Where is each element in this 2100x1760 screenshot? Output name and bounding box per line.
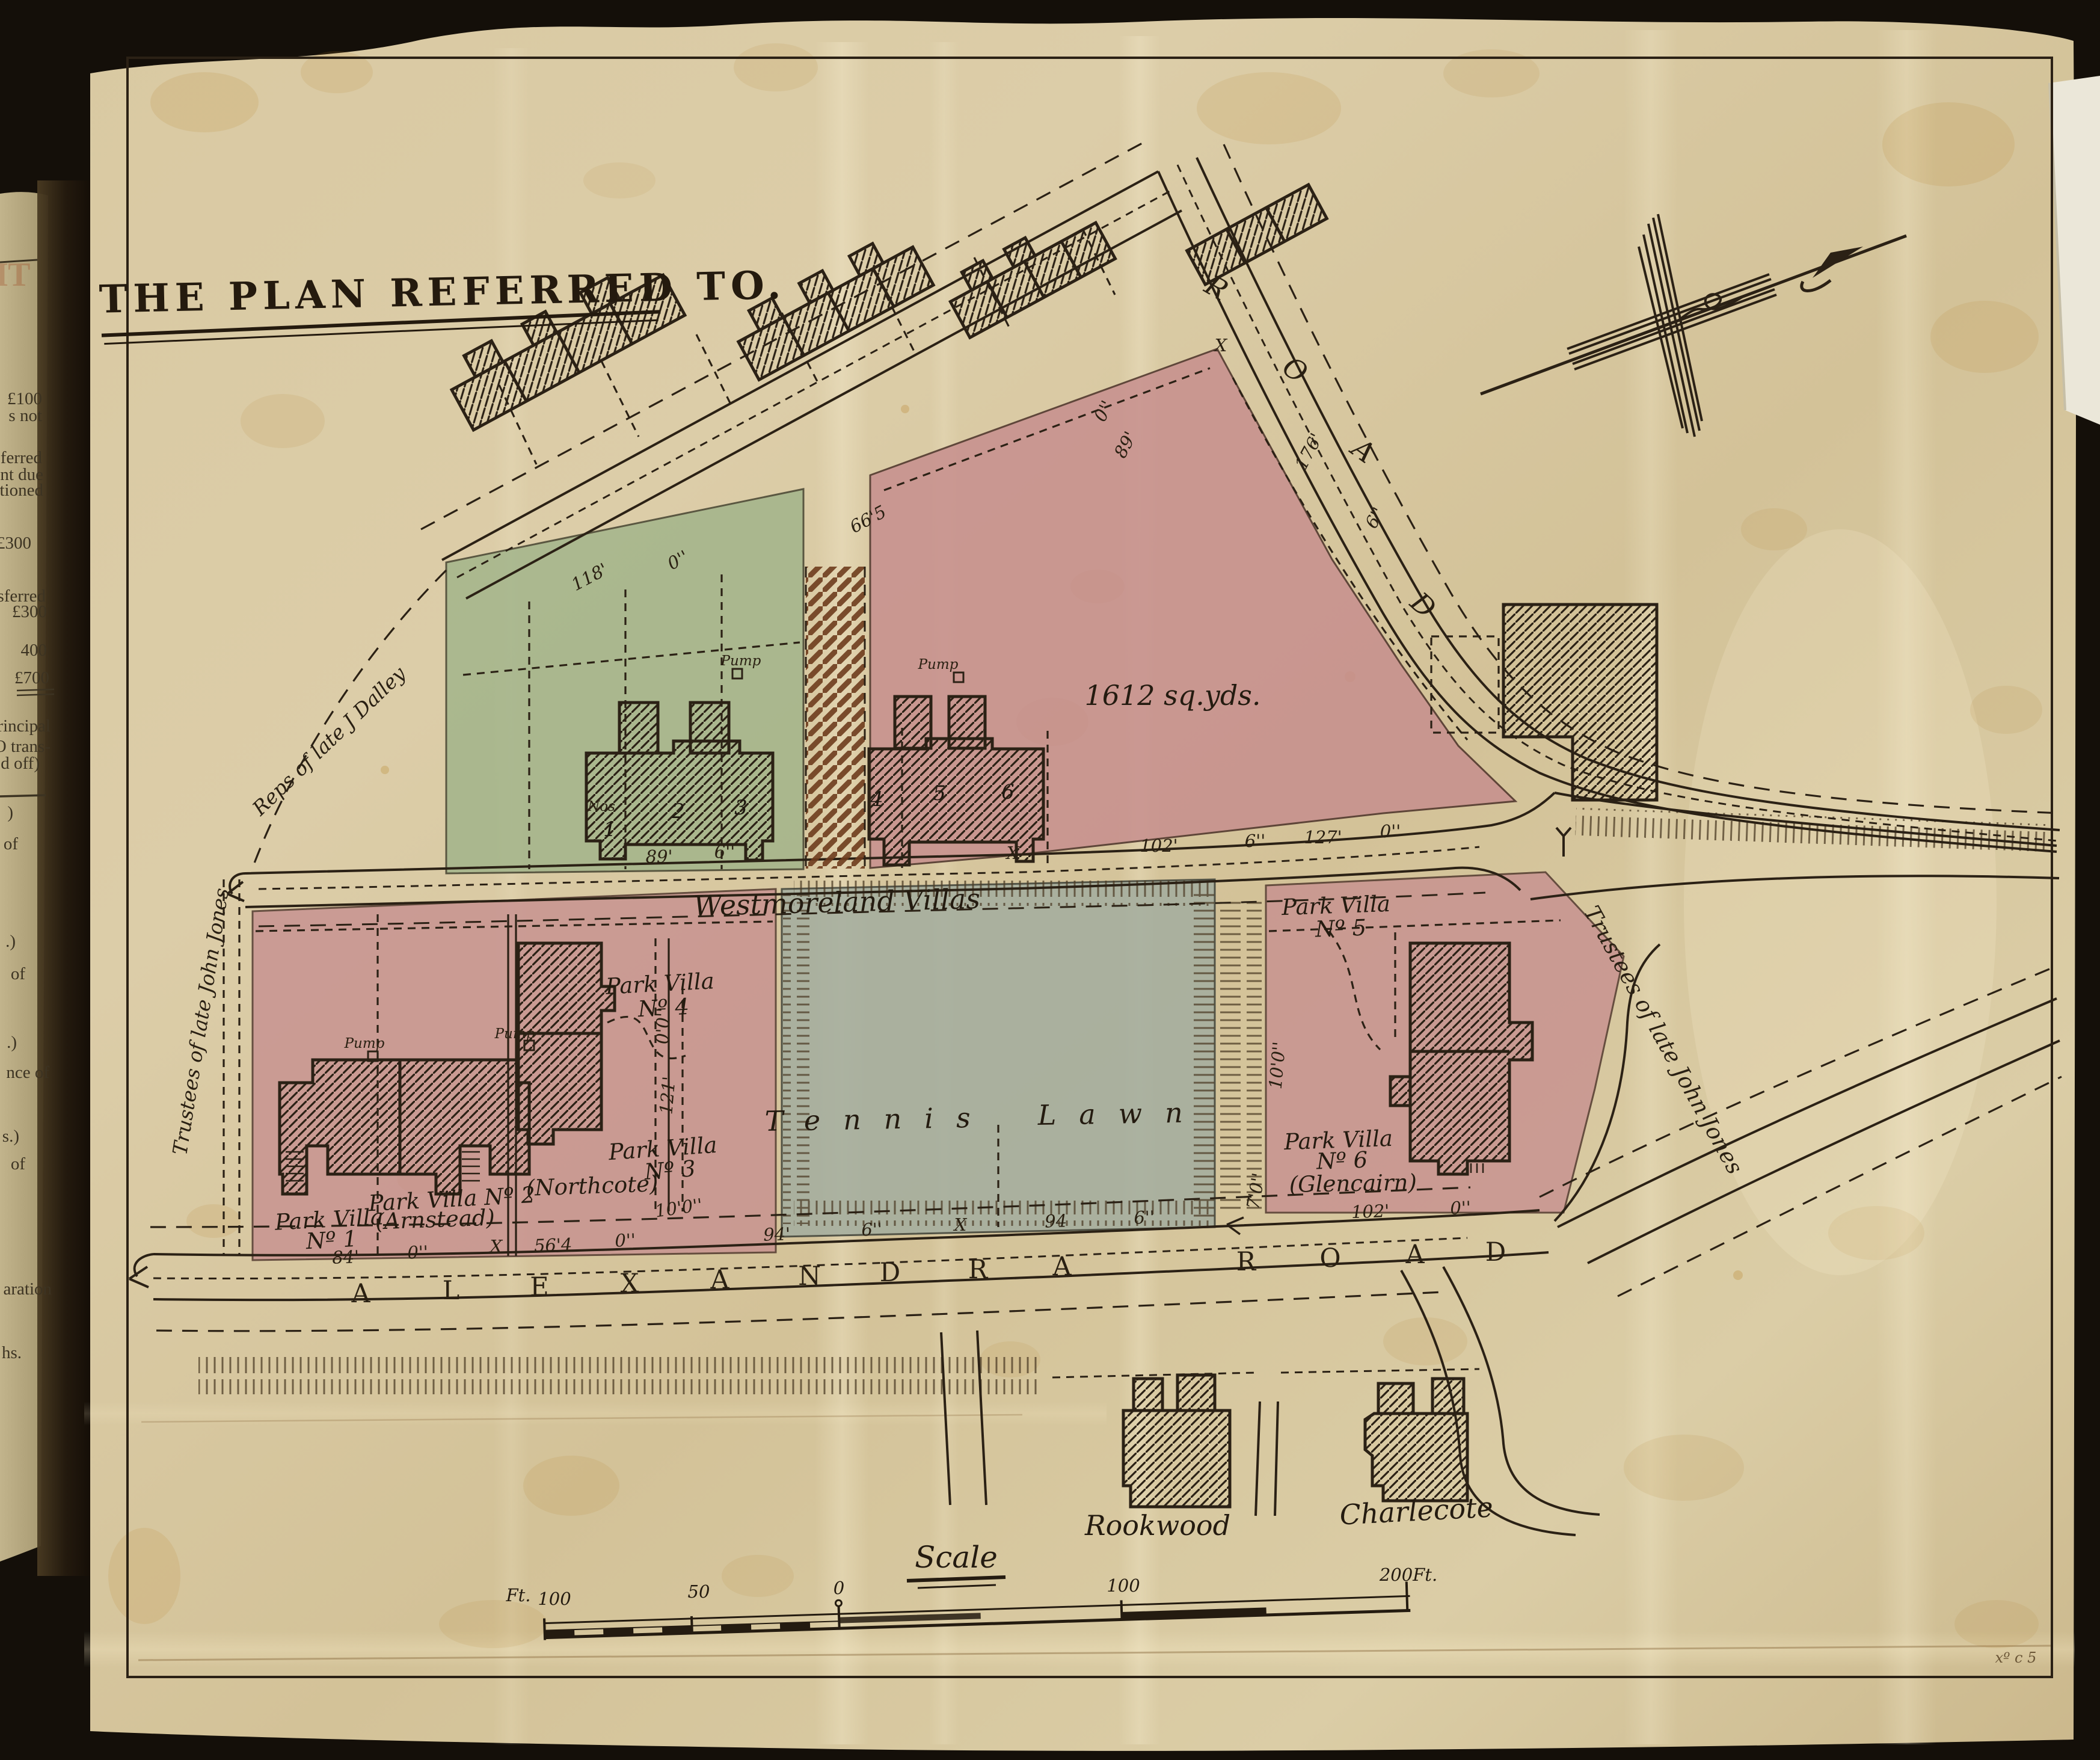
alexandra-letter: A bbox=[1052, 1252, 1072, 1282]
scale-50: 50 bbox=[688, 1581, 710, 1602]
dim-6d: 6'' bbox=[1134, 1207, 1155, 1228]
charlecote-back-addition bbox=[1378, 1383, 1413, 1414]
label-northcote: (Northcote) bbox=[526, 1171, 659, 1201]
label-1612-sqyds: 1612 sq.yds. bbox=[1084, 679, 1260, 712]
margin-fragment: s.) bbox=[2, 1127, 19, 1146]
dim-6c: 6'' bbox=[861, 1219, 883, 1240]
margin-fragment: £300 bbox=[12, 602, 47, 621]
margin-fragment: hs. bbox=[2, 1343, 22, 1362]
label-pump-2: Pump bbox=[918, 657, 959, 672]
rookwood-back-addition bbox=[1177, 1375, 1215, 1411]
label-no-5: 5 bbox=[933, 781, 946, 805]
scanned-plan-page: THE PLAN REFERRED TO. Reps of late J Dal… bbox=[0, 0, 2100, 1760]
margin-fragment: nce of bbox=[6, 1063, 49, 1082]
label-nos: Nos bbox=[587, 799, 615, 814]
margin-fragment: £700 bbox=[14, 668, 49, 688]
dim-x-c: X bbox=[953, 1214, 968, 1235]
label-no-3: 3 bbox=[734, 796, 748, 820]
margin-fragment: ) bbox=[7, 803, 13, 822]
charlecote-back-addition bbox=[1432, 1379, 1464, 1414]
dim-89: 89' bbox=[646, 846, 673, 867]
dim-0e: 0'' bbox=[1450, 1197, 1472, 1218]
road-letter: A bbox=[1405, 1240, 1425, 1270]
label-tennis: Tennis bbox=[764, 1101, 993, 1137]
label-no-4: 4 bbox=[870, 787, 883, 811]
road-letter: O bbox=[1319, 1243, 1340, 1273]
plan-canvas: THE PLAN REFERRED TO. Reps of late J Dal… bbox=[0, 0, 2100, 1760]
margin-fragment: £300 bbox=[0, 534, 31, 553]
alexandra-letter: A bbox=[351, 1279, 370, 1309]
label-pump-3: Pump bbox=[344, 1036, 385, 1051]
margin-fragment: of bbox=[11, 1154, 26, 1174]
dim-127: 127' bbox=[1304, 827, 1342, 848]
dim-121: 121' bbox=[655, 1075, 679, 1115]
label-pump-4: Pump bbox=[494, 1026, 535, 1042]
alexandra-letter: L bbox=[443, 1276, 460, 1306]
scale-100-left: 100 bbox=[538, 1589, 571, 1609]
alexandra-letter: N bbox=[798, 1261, 821, 1291]
margin-fragment: 400 bbox=[21, 641, 48, 660]
plate-mark: xº c 5 bbox=[1995, 1649, 2037, 1666]
label-park-villa-5-no: Nº 5 bbox=[1314, 915, 1367, 943]
label-no-6: 6 bbox=[1001, 780, 1015, 804]
westmoreland-back-addition bbox=[690, 703, 729, 753]
dim-0c: 0'' bbox=[407, 1242, 429, 1263]
dim-x-b: X bbox=[489, 1236, 503, 1257]
alexandra-letter: D bbox=[880, 1258, 900, 1288]
building-rookwood bbox=[1123, 1411, 1230, 1507]
building-park-villa-3-4 bbox=[518, 943, 615, 1144]
margin-fragment: of bbox=[4, 834, 19, 854]
margin-fragment: of bbox=[11, 964, 26, 983]
dim-56-4: 56'4 bbox=[533, 1234, 572, 1256]
alexandra-letter: E bbox=[530, 1272, 548, 1302]
westmoreland-back-addition bbox=[949, 697, 985, 748]
dim-94b: 94 bbox=[1045, 1210, 1067, 1231]
dim-0b: 0'' bbox=[1380, 821, 1401, 842]
dim-94a: 94' bbox=[763, 1223, 791, 1245]
dim-0-0: 0'0'' bbox=[652, 1008, 674, 1045]
scale-heading: Scale bbox=[915, 1540, 998, 1575]
margin-fragment: aration bbox=[3, 1279, 52, 1299]
margin-fragment: .) bbox=[7, 1033, 17, 1052]
road-letter: R bbox=[1236, 1247, 1257, 1277]
dim-6b: 6'' bbox=[1245, 831, 1265, 851]
alexandra-letter: R bbox=[968, 1255, 989, 1285]
margin-fragment: s not bbox=[8, 406, 42, 425]
dim-84: 84' bbox=[332, 1246, 360, 1268]
villa-porch bbox=[1390, 1077, 1410, 1106]
dim-6a: 6'' bbox=[714, 842, 735, 862]
label-lawn: Lawn bbox=[1037, 1096, 1206, 1131]
dim-x-d: X bbox=[1214, 335, 1228, 355]
rookwood-back-addition bbox=[1134, 1379, 1162, 1411]
margin-fragment: tioned bbox=[0, 481, 43, 500]
dim-x-a: X bbox=[1005, 843, 1020, 863]
label-glencairn: (Glencairn) bbox=[1289, 1169, 1417, 1198]
gutter-shadow bbox=[37, 180, 95, 1576]
label-rookwood: Rookwood bbox=[1084, 1509, 1230, 1542]
label-no-1: 1 bbox=[603, 817, 616, 842]
right-of-way-band bbox=[806, 567, 865, 869]
westmoreland-back-addition bbox=[619, 703, 658, 753]
dim-0d: 0'' bbox=[615, 1229, 636, 1251]
scale-200: 200Ft. bbox=[1379, 1565, 1437, 1585]
alexandra-letter: X bbox=[621, 1269, 639, 1299]
dim-102b: 102' bbox=[1351, 1201, 1389, 1222]
dim-10-0b: 10'0'' bbox=[1265, 1041, 1290, 1090]
margin-fragment: .) bbox=[5, 932, 16, 951]
margin-fragment: d off) bbox=[1, 754, 40, 773]
label-no-2: 2 bbox=[671, 799, 685, 823]
dim-102: 102' bbox=[1140, 835, 1177, 856]
scale-ft: Ft. bbox=[506, 1585, 531, 1605]
scale-100-right: 100 bbox=[1107, 1575, 1140, 1596]
alexandra-letter: A bbox=[710, 1265, 729, 1295]
label-pump-1: Pump bbox=[720, 653, 761, 669]
label-arnstead: (Arnstead) bbox=[375, 1205, 496, 1235]
westmoreland-back-addition bbox=[895, 697, 931, 748]
scale-0: 0 bbox=[834, 1578, 844, 1598]
margin-fragment: rincipal bbox=[0, 716, 51, 736]
road-letter: D bbox=[1485, 1237, 1506, 1267]
